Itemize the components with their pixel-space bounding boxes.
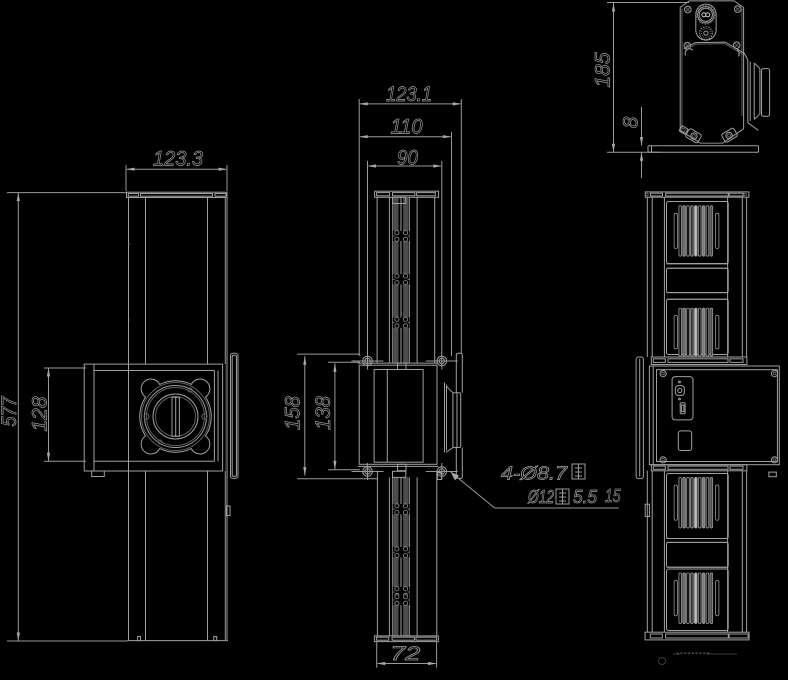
svg-text:138: 138 [312, 396, 335, 430]
svg-text:123.1: 123.1 [386, 83, 432, 106]
svg-text:4-Ø8.7: 4-Ø8.7 [501, 464, 568, 484]
svg-text:123.3: 123.3 [153, 148, 203, 171]
svg-text:110: 110 [391, 116, 423, 139]
svg-text:5.5: 5.5 [573, 487, 598, 507]
svg-text:Ø12: Ø12 [527, 487, 554, 507]
svg-text:72: 72 [390, 644, 421, 665]
svg-text:8: 8 [620, 116, 643, 128]
svg-text:158: 158 [282, 396, 305, 430]
svg-text:185: 185 [592, 52, 615, 87]
svg-text:15: 15 [605, 486, 622, 506]
